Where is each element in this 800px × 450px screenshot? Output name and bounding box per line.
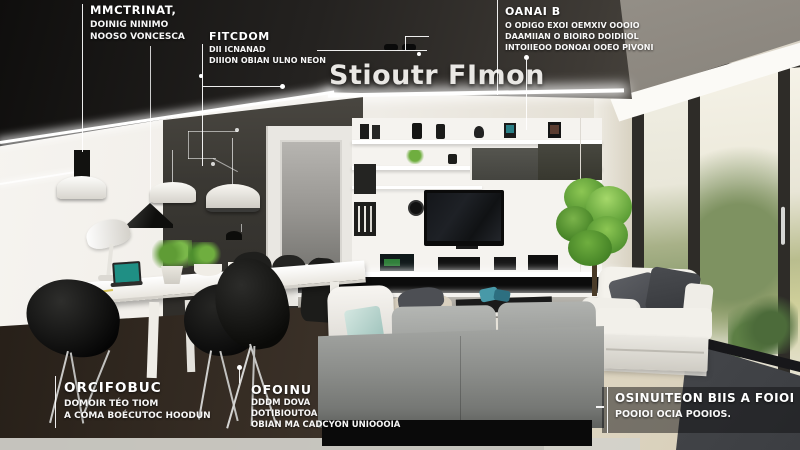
lamp-cord bbox=[150, 46, 151, 206]
leader-dot bbox=[280, 84, 285, 89]
media-box-icon bbox=[380, 254, 414, 271]
annotation-line: DOMOIR TÉO TIOM bbox=[64, 398, 264, 410]
shelf-book-icon bbox=[372, 125, 380, 139]
upper-cabinet bbox=[538, 144, 602, 180]
tv-screen bbox=[424, 190, 504, 246]
annotation-line: O ODIGO EXOI OEMXIV OOOIO bbox=[505, 20, 685, 31]
leader-line-top-right bbox=[497, 0, 498, 95]
leader-line-bottom-mid bbox=[239, 369, 240, 383]
pendant-lamp-black-cylinder bbox=[74, 150, 90, 178]
annotation-line: DOTIBIOUTOA bbox=[251, 409, 441, 420]
shelf-book-icon bbox=[360, 124, 369, 139]
annotation-line: INTOIIEOO DONOAI OOEO PIVONI bbox=[505, 42, 685, 53]
pendant-lamp-white-dome bbox=[57, 176, 106, 199]
leader-dot bbox=[417, 52, 421, 56]
plant-bowl bbox=[194, 264, 222, 276]
annotation-top-right: OANAI B O ODIGO EXOI OEMXIV OOOIO DAAMII… bbox=[505, 5, 685, 53]
title-leader-line bbox=[317, 50, 427, 51]
tv-stand-line bbox=[456, 246, 478, 249]
leader-line-top-right-drop bbox=[526, 60, 527, 130]
annotation-line: POOIOI OCIA POOIOS. bbox=[615, 408, 800, 421]
plant-pot-body bbox=[161, 266, 183, 284]
table-lamp-shade bbox=[83, 215, 132, 252]
leader-dash bbox=[596, 406, 604, 408]
media-box-icon bbox=[438, 257, 480, 270]
title-leader-bracket bbox=[405, 36, 406, 50]
annotation-heading: OANAI B bbox=[505, 5, 685, 18]
wall-line-art bbox=[188, 131, 189, 159]
page-title: Stioutr FImon bbox=[329, 60, 545, 91]
pendant-lamp-white-dome bbox=[206, 184, 260, 212]
shelf-ornament-icon bbox=[474, 126, 484, 138]
wall-lamp-icon bbox=[226, 231, 242, 240]
annotation-heading: MMCTRINAT, bbox=[90, 4, 230, 17]
title-leader-bracket bbox=[405, 36, 429, 37]
lamp-cord bbox=[232, 138, 233, 186]
shelf-speaker-icon bbox=[412, 123, 422, 139]
wall-line-art bbox=[188, 131, 238, 132]
plant-leaves bbox=[188, 242, 226, 266]
annotation-heading: OSINUITEON BIIS A FOIOI bbox=[615, 391, 800, 406]
annotation-heading: FITCDOM bbox=[209, 30, 369, 43]
annotation-heading: OFOINU bbox=[251, 382, 441, 397]
wall-lamp-stem bbox=[241, 224, 242, 232]
laptop bbox=[109, 261, 143, 289]
annotation-heading: ORCIFOBUC bbox=[64, 380, 264, 396]
shelf-ornament-icon bbox=[448, 154, 457, 164]
laptop-base bbox=[111, 281, 143, 287]
annotation-bottom-right: OSINUITEON BIIS A FOIOI POOIOI OCIA POOI… bbox=[615, 391, 800, 421]
storage-box-icon bbox=[354, 164, 376, 194]
annotated-interior-scene: MMCTRINAT, DOINIG NINIMO NOOSO VONCESCA … bbox=[0, 0, 800, 450]
leader-line-top-mid-branch bbox=[203, 86, 283, 87]
annotation-line: DDDM DOVA bbox=[251, 398, 441, 409]
pendant-lamp-white-dome bbox=[150, 182, 196, 203]
annotation-bottom-mid: OFOINU DDDM DOVA DOTIBIOUTOA OBIAN MA CA… bbox=[251, 382, 441, 431]
wall-line-art-dot bbox=[235, 128, 239, 132]
leader-line-bottom-right bbox=[607, 387, 608, 433]
lamp-cord bbox=[172, 150, 173, 184]
leader-line-bottom-left bbox=[55, 376, 56, 428]
annotation-line: A COMA BOÉCUTOC HOODUN bbox=[64, 410, 264, 422]
media-box-icon bbox=[494, 257, 516, 270]
shelf-plant-icon bbox=[406, 150, 424, 164]
leader-line-top-left bbox=[82, 4, 83, 152]
wall-line-art-dot bbox=[211, 162, 215, 166]
shelf-speaker-icon bbox=[436, 124, 445, 139]
media-box-icon bbox=[528, 255, 558, 270]
leader-dot bbox=[199, 74, 203, 78]
annotation-bottom-left: ORCIFOBUC DOMOIR TÉO TIOM A COMA BOÉCUTO… bbox=[64, 380, 264, 422]
sofa-panel-seam bbox=[460, 336, 461, 426]
annotation-line: OBIAN MA CADCYON UNIOOOIA bbox=[251, 420, 441, 431]
door-glass bbox=[280, 140, 342, 266]
shelf-frame-icon bbox=[504, 123, 516, 138]
shelf-frame-icon bbox=[548, 122, 561, 138]
window-handle bbox=[781, 207, 785, 245]
tree-canopy bbox=[568, 230, 612, 266]
leader-line-top-mid bbox=[202, 44, 203, 166]
round-clock-icon bbox=[408, 200, 424, 216]
plant-leaves bbox=[152, 240, 192, 268]
annotation-line: DAAMIIAN O BIOIRO DOIDIIOL bbox=[505, 31, 685, 42]
storage-box-icon bbox=[354, 202, 376, 236]
upper-cabinet bbox=[470, 148, 538, 180]
